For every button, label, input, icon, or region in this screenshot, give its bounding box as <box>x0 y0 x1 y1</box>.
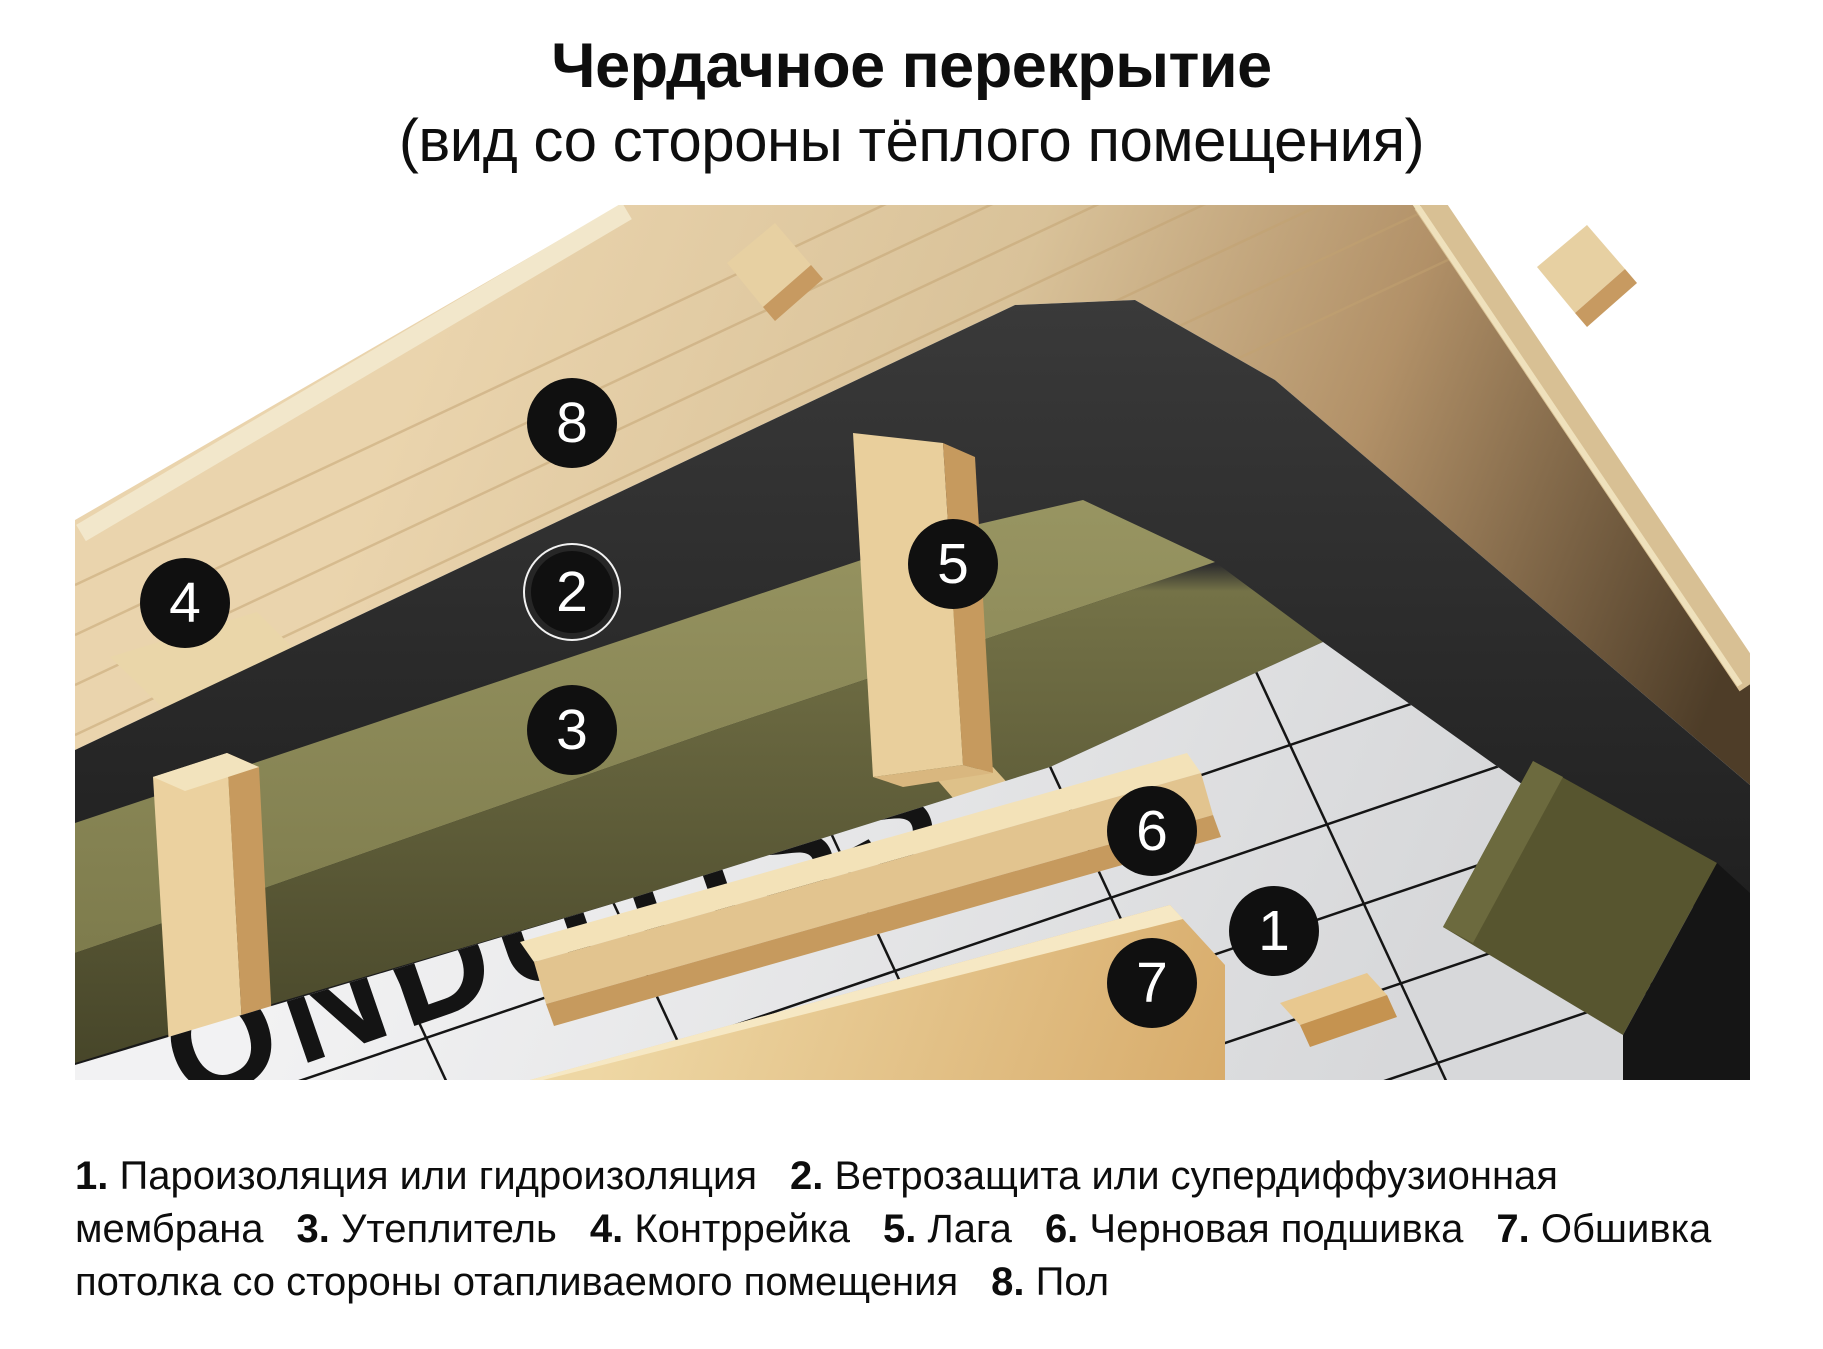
legend-item-3: 3. Утеплитель <box>297 1207 557 1251</box>
legend-item-5: 5. Лага <box>883 1207 1012 1251</box>
marker-4: 4 <box>140 558 230 648</box>
marker-8: 8 <box>527 378 617 468</box>
legend-item-1: 1. Пароизоляция или гидроизоляция <box>75 1154 757 1198</box>
marker-6: 6 <box>1107 786 1197 876</box>
marker-1: 1 <box>1229 886 1319 976</box>
legend-item-4: 4. Контррейка <box>590 1207 850 1251</box>
legend: 1. Пароизоляция или гидроизоляция2. Ветр… <box>75 1150 1765 1309</box>
infographic-page: Чердачное перекрытие (вид со стороны тёп… <box>0 0 1823 1349</box>
marker-7: 7 <box>1107 938 1197 1028</box>
marker-layer: 12345678 <box>0 0 1823 1349</box>
legend-item-6: 6. Черновая подшивка <box>1045 1207 1463 1251</box>
marker-5: 5 <box>908 519 998 609</box>
legend-item-8: 8. Пол <box>991 1260 1109 1304</box>
marker-2: 2 <box>531 551 613 633</box>
marker-3: 3 <box>527 685 617 775</box>
